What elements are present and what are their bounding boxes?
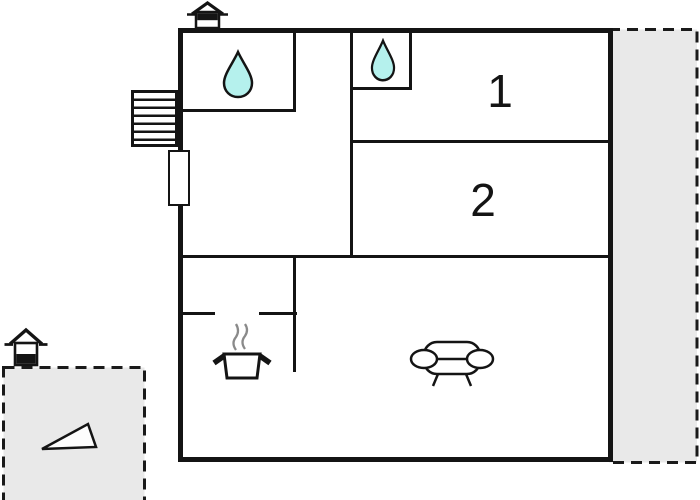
wall-room1-room2-divider — [350, 140, 608, 143]
door-icon — [168, 150, 190, 206]
wall-bathroom2-right — [409, 33, 412, 90]
floor-plan: 1 2 — [0, 0, 700, 500]
wall-center-vertical — [350, 33, 353, 258]
water-drop-icon — [219, 49, 257, 99]
wall-middle-horizontal — [183, 255, 608, 258]
stairs-icon — [131, 90, 178, 147]
sofa-icon — [408, 338, 496, 388]
wall-bathroom2-bottom — [350, 87, 412, 90]
terrace-right — [609, 26, 700, 466]
steam-icon — [243, 324, 248, 349]
water-drop-icon — [368, 38, 398, 82]
wall-bathroom1-bottom — [183, 109, 296, 112]
cooking-pot-icon — [210, 316, 274, 382]
wall-kitchen-partial-right — [259, 312, 297, 315]
wall-kitchen-partial-left — [183, 312, 215, 315]
steam-icon — [234, 324, 239, 350]
room-label-1: 1 — [478, 68, 522, 114]
terrace-bottom-left — [0, 364, 150, 500]
wall-bathroom1-right — [293, 33, 296, 112]
house-lower-level-icon — [4, 327, 48, 367]
room-label-2: 2 — [461, 177, 505, 223]
wall-kitchen-right — [293, 258, 296, 372]
house-upper-level-icon — [186, 1, 229, 29]
